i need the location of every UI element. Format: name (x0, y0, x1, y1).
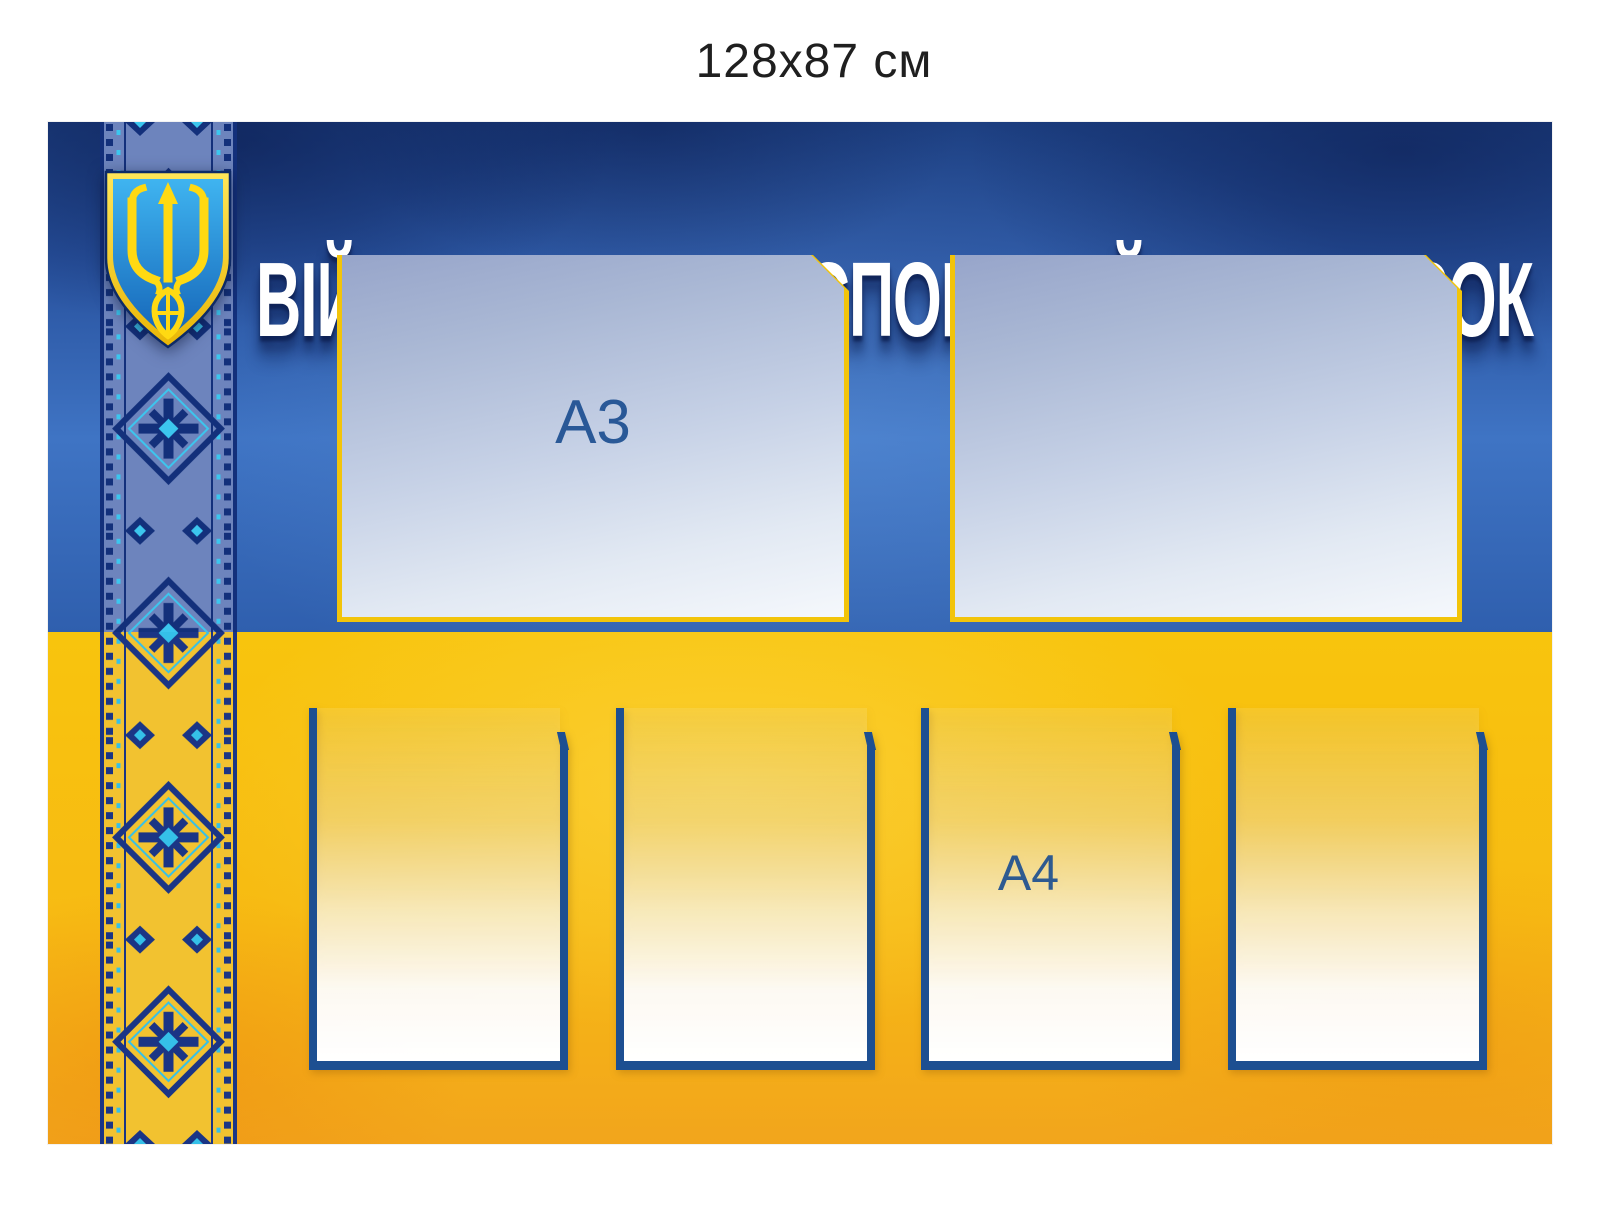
a4-pocket-border (309, 1061, 568, 1070)
a4-pocket (616, 708, 875, 1070)
stand-size-label: 128x87 см (0, 34, 1600, 89)
a4-pocket-border (1172, 746, 1180, 1070)
a4-pocket-window (1236, 708, 1479, 1061)
a4-pocket-window (317, 708, 560, 1061)
a4-pocket-border (921, 708, 929, 1070)
a4-pocket-border (309, 708, 317, 1070)
a4-pocket-window: A4 (929, 708, 1172, 1061)
a4-pocket-border (1228, 1061, 1487, 1070)
a4-pocket-window (624, 708, 867, 1061)
a4-pocket-border (616, 1061, 875, 1070)
page-root: 128x87 см (0, 0, 1600, 1206)
a4-pocket-border (867, 746, 875, 1070)
a4-pocket-border (1228, 708, 1236, 1070)
a4-pocket-border (560, 746, 568, 1070)
ukraine-trident-emblem (98, 166, 238, 352)
trident-icon (98, 166, 238, 352)
a4-pocket-label: A4 (998, 844, 1059, 902)
a3-pocket (950, 255, 1462, 622)
a4-pocket-border (921, 1061, 1180, 1070)
display-board: ВІЙСЬКОВО-ТРАНСПОРТНИЙ ОБОВ’ЯЗОК A3 (48, 122, 1552, 1144)
a3-pocket-window (955, 255, 1457, 617)
a3-pocket: A3 (337, 255, 849, 622)
a4-pocket: A4 (921, 708, 1180, 1070)
a4-pocket-border (616, 708, 624, 1070)
a4-pocket (1228, 708, 1487, 1070)
a4-pocket (309, 708, 568, 1070)
a3-pocket-window: A3 (342, 255, 844, 617)
a3-pocket-label: A3 (555, 387, 631, 458)
a4-pocket-border (1479, 746, 1487, 1070)
